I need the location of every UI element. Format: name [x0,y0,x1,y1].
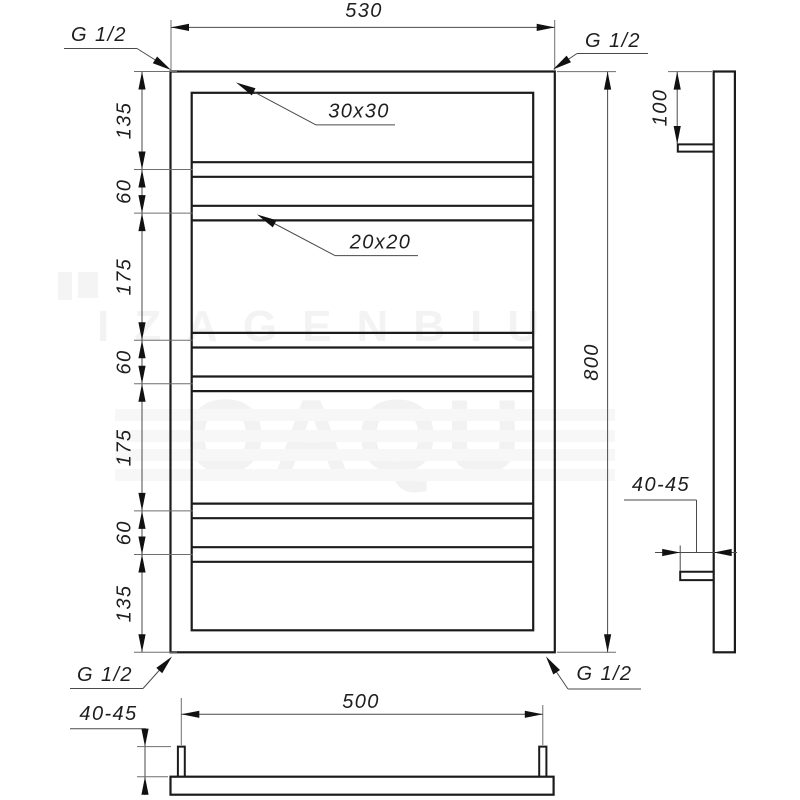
svg-text:G 1/2: G 1/2 [77,664,133,686]
svg-text:135: 135 [114,585,136,623]
svg-text:20x20: 20x20 [349,232,412,254]
svg-text:30x30: 30x30 [328,101,390,123]
svg-text:500: 500 [342,691,380,713]
svg-text:175: 175 [114,258,136,296]
svg-text:530: 530 [345,0,383,22]
svg-text:G 1/2: G 1/2 [585,30,641,52]
svg-text:175: 175 [114,429,136,467]
svg-text:60: 60 [114,349,136,374]
svg-text:40-45: 40-45 [632,474,690,496]
svg-text:40-45: 40-45 [79,703,137,725]
svg-text:135: 135 [114,102,136,140]
svg-text:IZAGENBIU: IZAGENBIU [97,302,564,351]
svg-text:60: 60 [114,179,136,204]
svg-text:G 1/2: G 1/2 [71,24,127,46]
svg-text:G 1/2: G 1/2 [577,663,633,685]
svg-text:800: 800 [581,343,603,381]
svg-text:60: 60 [114,520,136,545]
svg-text:100: 100 [650,89,672,127]
